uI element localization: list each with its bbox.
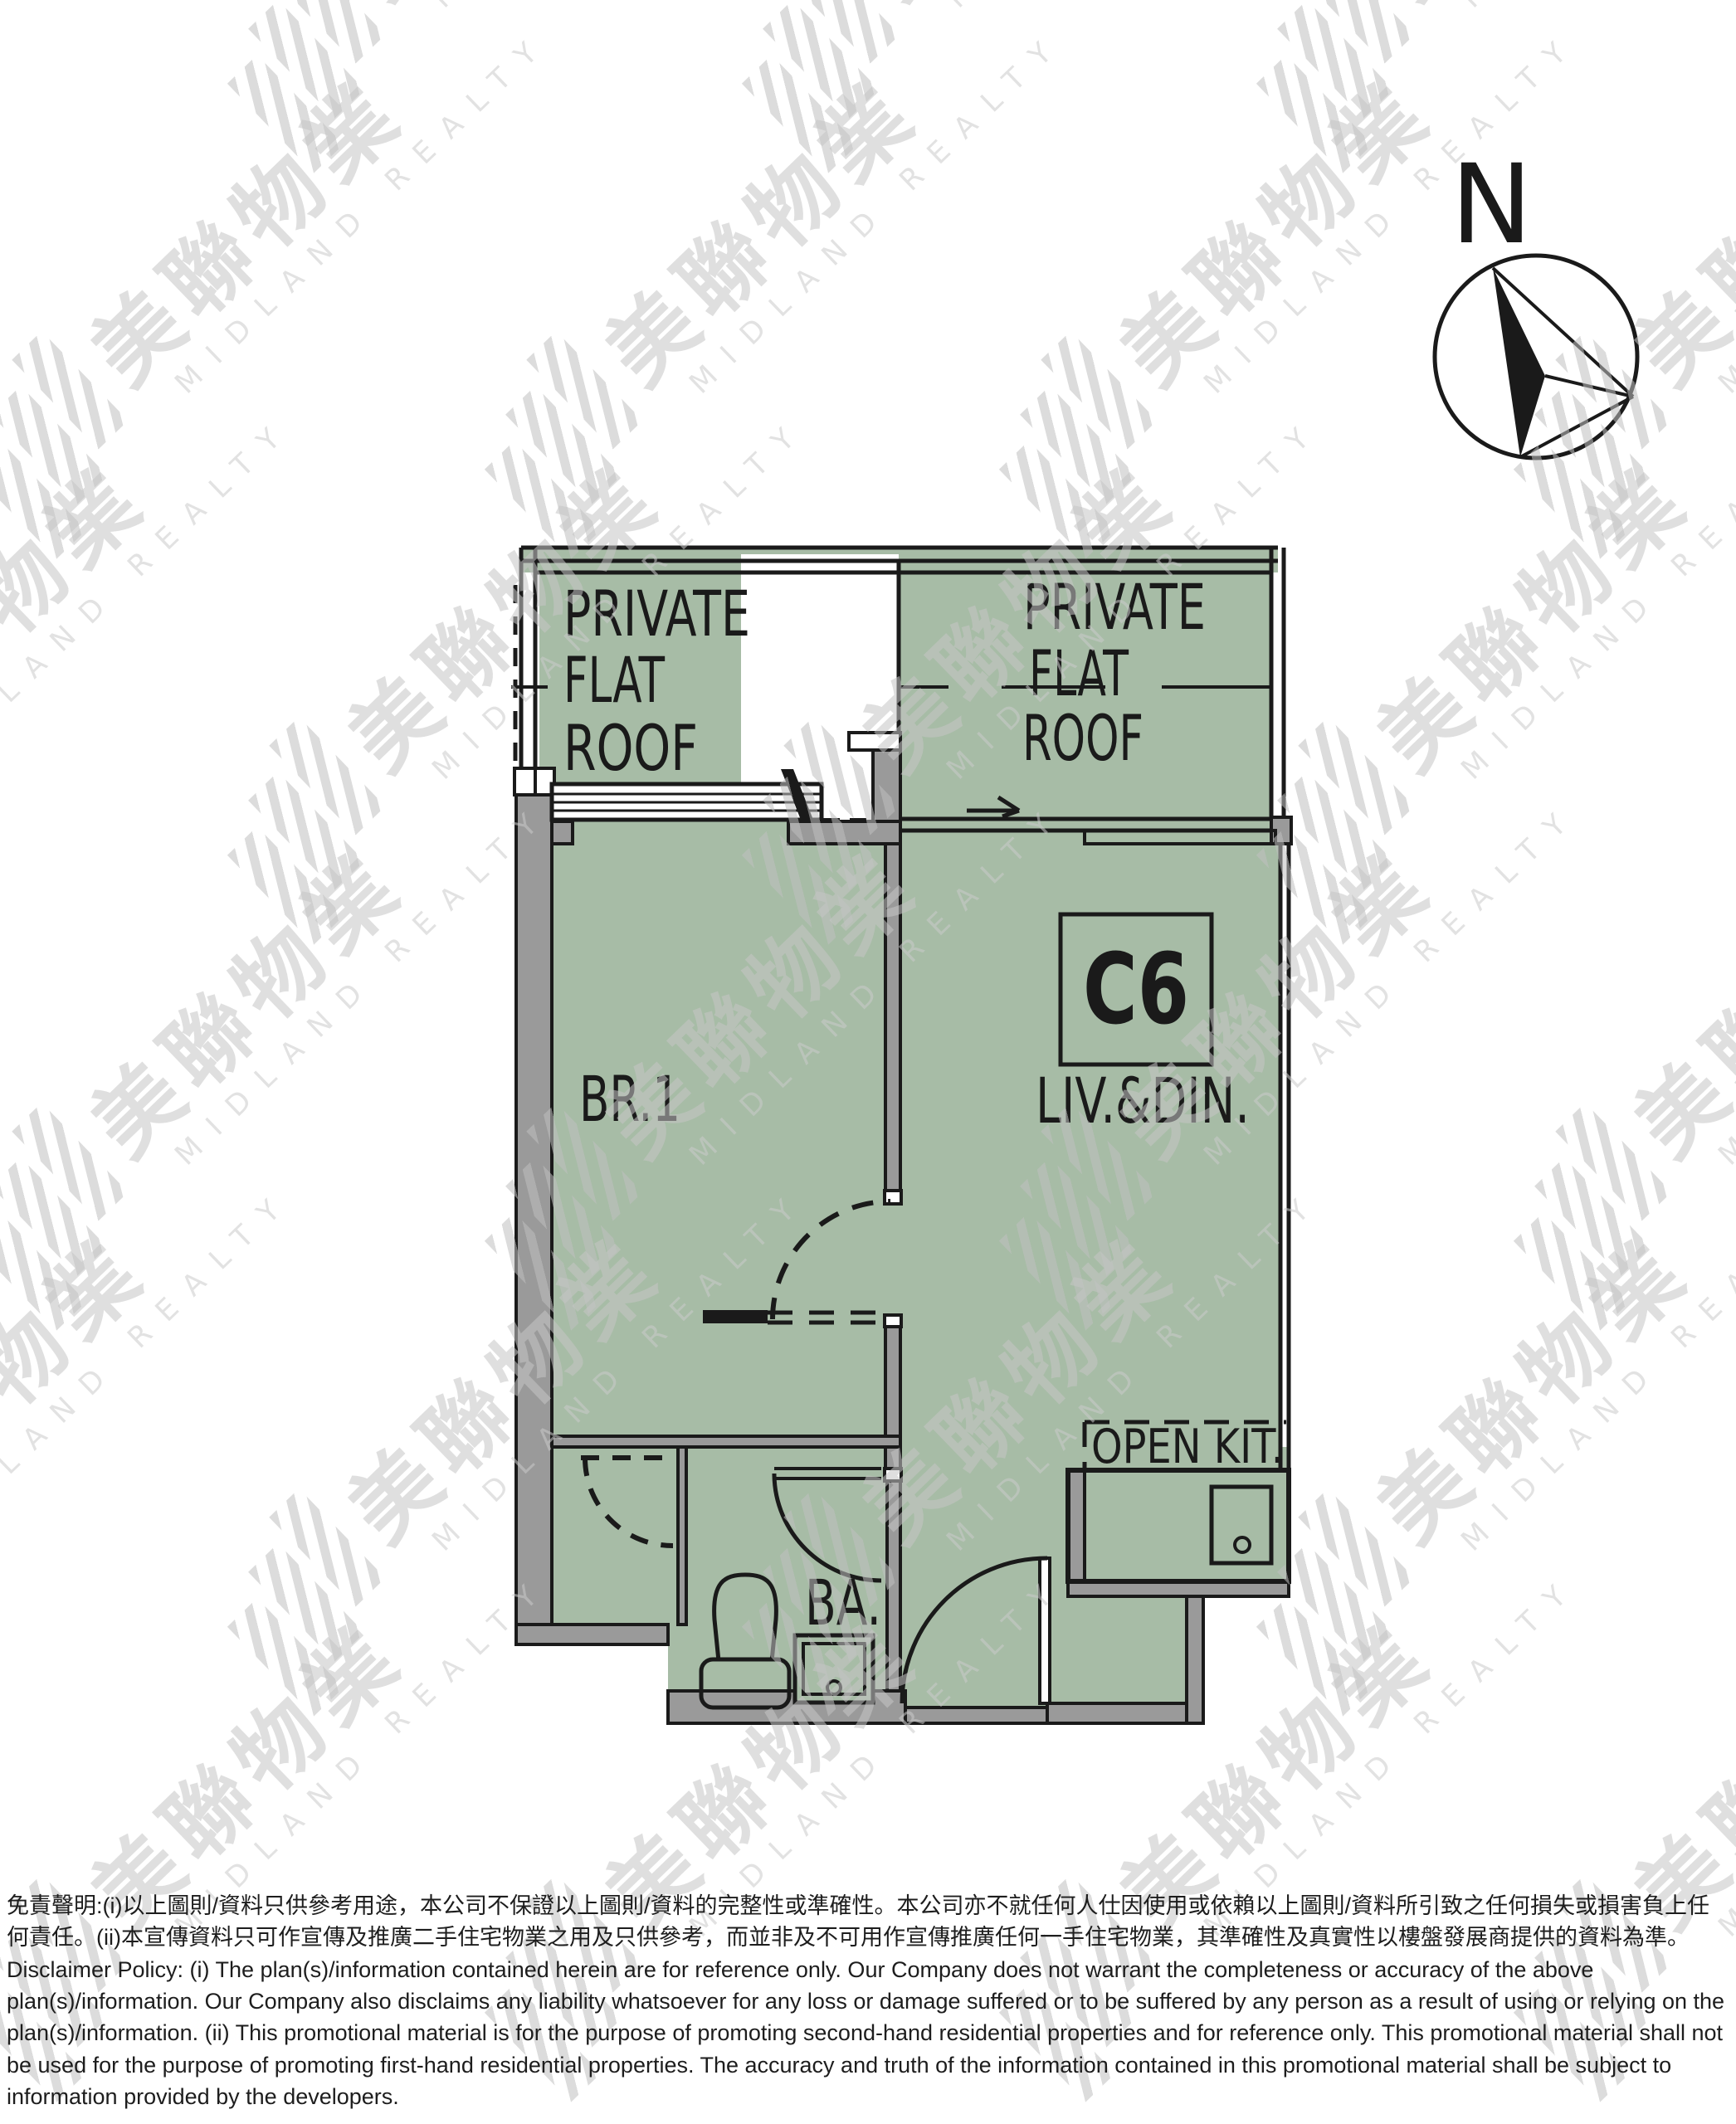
wash-basin (795, 1635, 873, 1703)
roof-column (873, 750, 900, 821)
roof-cutout-lower (741, 554, 873, 820)
unit-label-box: C6 (1061, 914, 1212, 1064)
flat-roof-left-label-1: PRIVATE (563, 577, 750, 650)
compass-circle (1435, 256, 1637, 458)
flat-roof-right-label-3: ROOF (1022, 701, 1144, 775)
north-label: N (1451, 141, 1533, 269)
compass-needle-fill (1493, 268, 1545, 457)
exterior-notch (1203, 1596, 1303, 1746)
open-kitchen-label: OPEN KIT. (1091, 1420, 1284, 1474)
flat-roof-right-label-2: FLAT (1029, 636, 1129, 710)
flat-roof-left-label-3: ROOF (563, 711, 698, 785)
closet-bathroom-divider (678, 1447, 686, 1625)
living-dining-label: LIV.&DIN. (1036, 1064, 1250, 1138)
hall-top-wall (552, 1436, 900, 1447)
north-compass: N (1435, 141, 1637, 458)
bedroom-top-wall (788, 821, 900, 844)
floor-plan-drawing: PRIVATE FLAT ROOF PRIVATE FLAT ROOF BR.1… (0, 0, 1736, 2124)
disclaimer-chinese: 免責聲明:(i)以上圖則/資料只供參考用途，本公司不保證以上圖則/資料的完整性或… (7, 1890, 1731, 1954)
left-exterior-wall (516, 793, 552, 1644)
disclaimer-block: 免責聲明:(i)以上圖則/資料只供參考用途，本公司不保證以上圖則/資料的完整性或… (7, 1890, 1731, 2112)
disclaimer-english: Disclaimer Policy: (i) The plan(s)/infor… (7, 1954, 1731, 2113)
bathroom-label: BA. (805, 1566, 881, 1639)
entry-bottom-wall (1047, 1703, 1203, 1723)
bedroom-top-wall-left (552, 821, 573, 844)
closet-bottom-wall (516, 1625, 668, 1644)
flat-roof-left-label-2: FLAT (563, 643, 665, 717)
bedroom-living-wall-upper (885, 844, 900, 1191)
right-lower-wall (1187, 1596, 1203, 1723)
floor-plan-page: PRIVATE FLAT ROOF PRIVATE FLAT ROOF BR.1… (0, 0, 1736, 2124)
unit-label: C6 (1083, 932, 1189, 1046)
entrance-door-leaf (1040, 1558, 1050, 1703)
bedroom-label: BR.1 (579, 1062, 680, 1136)
bathroom-right-wall (887, 1481, 900, 1691)
bathroom-door-hinge-cap (885, 1469, 901, 1481)
flat-roof-right-label-1: PRIVATE (1023, 570, 1206, 644)
right-exterior-wall (1280, 844, 1289, 1470)
entry-threshold (905, 1707, 1047, 1723)
